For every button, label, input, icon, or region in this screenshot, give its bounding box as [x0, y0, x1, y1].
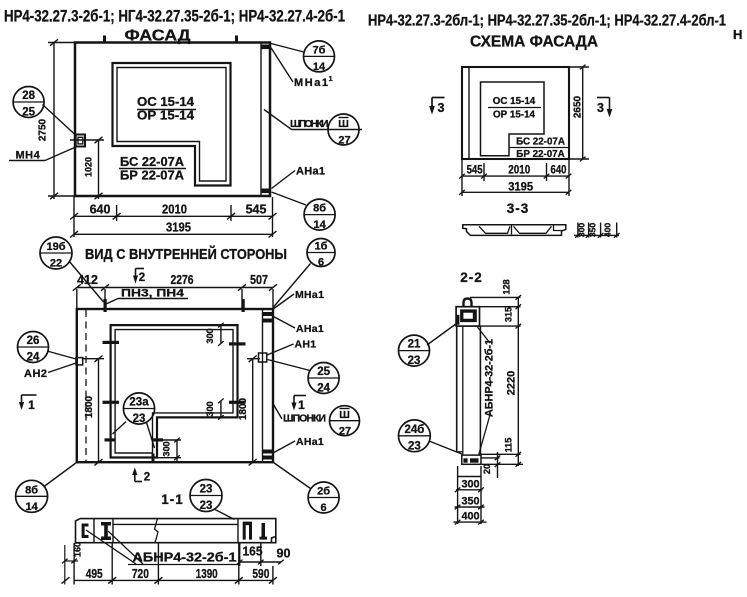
svg-text:1390: 1390: [196, 567, 218, 581]
svg-text:3: 3: [438, 101, 445, 115]
svg-text:22: 22: [50, 258, 62, 270]
svg-text:24б: 24б: [404, 424, 424, 436]
svg-text:ПН3, ПН4: ПН3, ПН4: [121, 288, 185, 300]
svg-text:23: 23: [408, 440, 421, 452]
svg-text:АНа1: АНа1: [296, 166, 325, 178]
svg-text:300: 300: [461, 478, 479, 490]
svg-text:2010: 2010: [508, 165, 530, 177]
svg-text:90: 90: [277, 547, 291, 561]
svg-text:165: 165: [243, 545, 263, 559]
svg-text:8б: 8б: [25, 484, 38, 496]
svg-text:1: 1: [298, 398, 305, 412]
svg-text:1: 1: [329, 74, 333, 83]
svg-text:23а: 23а: [129, 397, 149, 409]
svg-text:495: 495: [86, 567, 103, 581]
svg-text:2276: 2276: [171, 273, 194, 287]
svg-text:АН2: АН2: [24, 368, 48, 380]
svg-text:2-2: 2-2: [460, 270, 483, 285]
svg-text:3: 3: [597, 101, 604, 115]
svg-text:1800: 1800: [84, 395, 95, 418]
svg-text:НР4-32.27.3-2бл-1; НР4-32.27.: НР4-32.27.3-2бл-1; НР4-32.27.35-2бл-1; Н…: [368, 13, 726, 30]
svg-text:1800: 1800: [238, 397, 249, 420]
svg-text:24: 24: [317, 383, 330, 395]
svg-text:115: 115: [504, 438, 514, 453]
svg-text:300: 300: [205, 328, 215, 343]
svg-text:ШПОНКИ: ШПОНКИ: [283, 413, 326, 425]
svg-text:23: 23: [408, 355, 421, 367]
svg-text:350: 350: [588, 223, 598, 238]
svg-text:2: 2: [144, 472, 150, 484]
svg-text:20: 20: [482, 464, 492, 474]
svg-text:27: 27: [339, 426, 351, 438]
svg-text:2: 2: [139, 272, 145, 284]
svg-text:400: 400: [461, 510, 479, 522]
svg-text:3-3: 3-3: [507, 201, 530, 216]
svg-text:300: 300: [205, 401, 215, 416]
svg-text:МН4: МН4: [16, 150, 41, 162]
svg-text:25: 25: [317, 366, 330, 378]
svg-text:14: 14: [25, 501, 38, 513]
svg-text:23: 23: [200, 500, 213, 512]
svg-text:640: 640: [551, 165, 567, 177]
svg-text:МНа1: МНа1: [294, 77, 328, 89]
svg-text:АНа1: АНа1: [296, 323, 324, 335]
svg-text:2650: 2650: [573, 95, 584, 118]
svg-text:19б: 19б: [46, 241, 65, 253]
svg-text:23: 23: [133, 413, 146, 425]
svg-text:2750: 2750: [38, 118, 49, 141]
svg-text:400: 400: [603, 223, 613, 238]
svg-text:ОР 15-14: ОР 15-14: [493, 110, 535, 121]
svg-text:640: 640: [90, 203, 111, 217]
svg-text:1б: 1б: [315, 241, 328, 253]
svg-text:7б: 7б: [313, 44, 326, 56]
svg-text:8б: 8б: [313, 203, 326, 215]
svg-text:АБНР4-32-2б-1: АБНР4-32-2б-1: [484, 339, 496, 417]
svg-text:350: 350: [461, 495, 479, 507]
svg-text:ШПОНКИ: ШПОНКИ: [290, 118, 329, 130]
svg-text:412: 412: [77, 273, 98, 287]
svg-text:АНа1: АНа1: [296, 436, 324, 448]
svg-text:27: 27: [338, 135, 350, 147]
svg-text:НР4-32.27.3-2б-1; НГ4-32.27.3: НР4-32.27.3-2б-1; НГ4-32.27.35-2б-1; НР4…: [4, 8, 345, 26]
svg-text:720: 720: [132, 567, 149, 581]
svg-text:26: 26: [27, 335, 40, 347]
svg-text:БР 22-07А: БР 22-07А: [516, 149, 564, 160]
svg-text:ОС 15-14: ОС 15-14: [493, 96, 536, 107]
svg-text:300: 300: [162, 441, 172, 456]
svg-text:Н: Н: [733, 27, 742, 42]
svg-text:1-1: 1-1: [161, 492, 184, 507]
svg-text:6: 6: [318, 257, 324, 269]
svg-text:545: 545: [246, 203, 267, 217]
svg-text:АН1: АН1: [295, 339, 317, 351]
svg-text:БР 22-07А: БР 22-07А: [120, 168, 185, 183]
svg-text:545: 545: [467, 165, 484, 177]
svg-text:2220: 2220: [506, 371, 518, 395]
svg-text:14: 14: [313, 61, 326, 73]
svg-text:315: 315: [504, 307, 514, 322]
svg-text:3195: 3195: [508, 181, 534, 193]
svg-text:СХЕМА ФАСАДА: СХЕМА ФАСАДА: [470, 34, 598, 51]
svg-text:2б: 2б: [317, 486, 330, 498]
svg-text:14: 14: [313, 219, 326, 231]
svg-text:1: 1: [28, 398, 35, 412]
svg-text:Ш: Ш: [338, 118, 349, 130]
svg-text:23: 23: [200, 484, 213, 496]
svg-text:ВИД С ВНУТРЕННЕЙ СТОРОНЫ: ВИД С ВНУТРЕННЕЙ СТОРОНЫ: [85, 245, 287, 263]
svg-text:28: 28: [22, 90, 35, 102]
svg-text:25: 25: [22, 107, 35, 119]
svg-text:1020: 1020: [84, 157, 94, 177]
svg-text:БС 22-07А: БС 22-07А: [516, 137, 565, 148]
svg-text:2010: 2010: [162, 203, 187, 217]
svg-text:3195: 3195: [166, 221, 191, 235]
svg-text:24: 24: [27, 352, 40, 364]
svg-text:Ш: Ш: [339, 409, 350, 421]
svg-text:МНа1: МНа1: [295, 289, 324, 301]
svg-text:21: 21: [408, 339, 421, 351]
svg-text:128: 128: [502, 279, 512, 294]
svg-text:АБНР4-32-2б-1: АБНР4-32-2б-1: [133, 550, 237, 565]
svg-text:507: 507: [250, 273, 268, 287]
svg-text:300: 300: [577, 223, 587, 238]
svg-text:ОР 15-14: ОР 15-14: [137, 108, 195, 123]
svg-text:6: 6: [321, 502, 327, 514]
svg-text:590: 590: [252, 567, 269, 581]
